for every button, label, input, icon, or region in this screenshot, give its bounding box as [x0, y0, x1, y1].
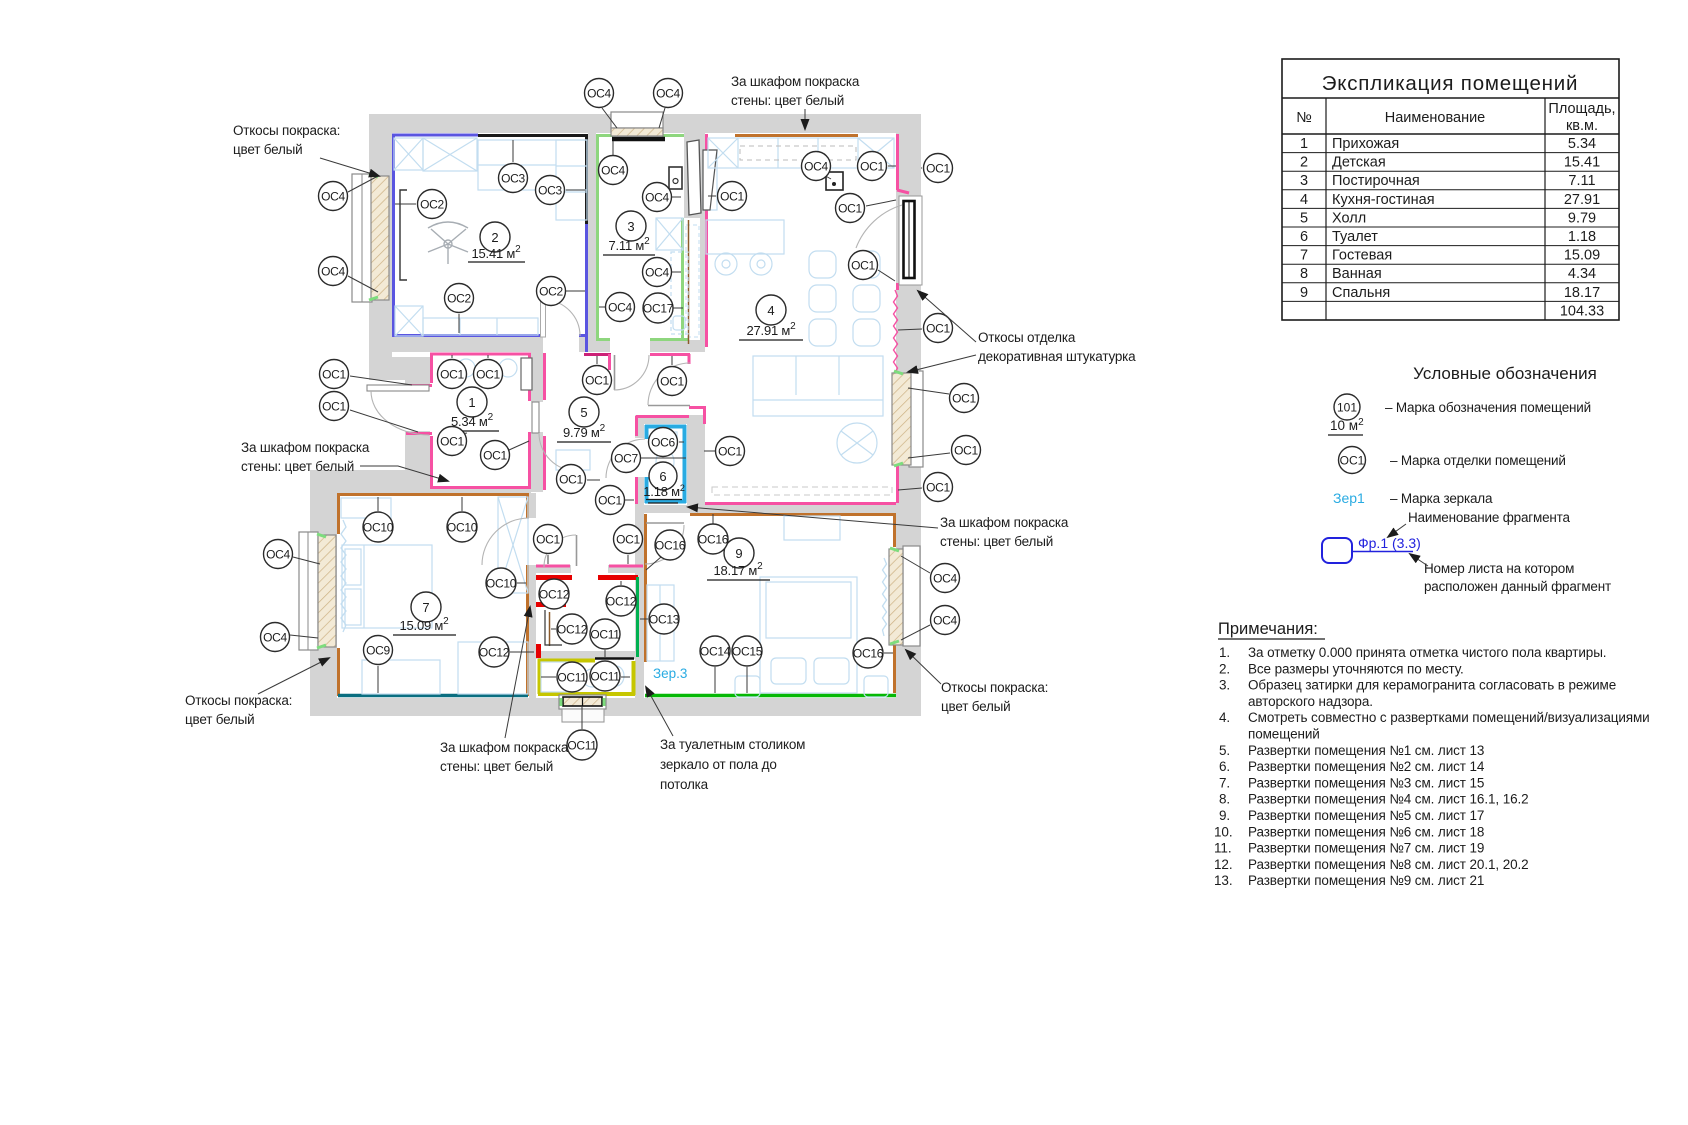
svg-text:ОС3: ОС3: [538, 184, 562, 198]
svg-text:3.: 3.: [1219, 678, 1230, 693]
svg-text:ОС11: ОС11: [567, 739, 597, 753]
svg-text:9.: 9.: [1219, 808, 1230, 823]
svg-text:Развертки помещения №2 см. лис: Развертки помещения №2 см. лист 14: [1248, 759, 1485, 774]
svg-text:ОС1: ОС1: [322, 400, 346, 414]
svg-text:ОС4: ОС4: [933, 614, 957, 628]
svg-text:Развертки помещения №3 см. лис: Развертки помещения №3 см. лист 15: [1248, 775, 1484, 790]
svg-text:2.: 2.: [1219, 661, 1230, 676]
svg-text:ОС1: ОС1: [483, 449, 507, 463]
svg-text:Образец затирки для керамогран: Образец затирки для керамогранита соглас…: [1248, 678, 1616, 693]
svg-text:Смотреть совместно с развертка: Смотреть совместно с развертками помещен…: [1248, 710, 1650, 725]
svg-text:7: 7: [1300, 248, 1308, 264]
svg-text:ОС7: ОС7: [614, 452, 638, 466]
svg-text:8.: 8.: [1219, 792, 1230, 807]
svg-text:9: 9: [735, 546, 742, 561]
svg-text:ОС1: ОС1: [616, 533, 640, 547]
svg-text:ОС1: ОС1: [720, 190, 744, 204]
svg-text:ОС1: ОС1: [838, 202, 862, 216]
svg-text:Зер.3: Зер.3: [653, 666, 687, 681]
svg-text:Гостевая: Гостевая: [1332, 248, 1392, 264]
svg-text:ОС3: ОС3: [501, 172, 525, 186]
svg-text:5.34: 5.34: [1568, 136, 1596, 152]
svg-text:ОС4: ОС4: [266, 548, 290, 562]
svg-text:За отметку 0.000 принята отмет: За отметку 0.000 принята отметка чистого…: [1248, 645, 1606, 660]
svg-text:ОС10: ОС10: [363, 521, 394, 535]
svg-text:8: 8: [1300, 266, 1308, 282]
svg-text:ОС1: ОС1: [954, 444, 978, 458]
svg-text:27.91 м2: 27.91 м2: [746, 321, 796, 338]
svg-text:ОС1: ОС1: [598, 494, 622, 508]
svg-text:За шкафом покраска: За шкафом покраска: [731, 74, 860, 89]
svg-text:18.17: 18.17: [1564, 285, 1600, 301]
svg-text:7.11: 7.11: [1568, 173, 1595, 189]
svg-text:ОС1: ОС1: [440, 435, 464, 449]
svg-text:ОС4: ОС4: [263, 631, 287, 645]
svg-text:ОС1: ОС1: [476, 368, 500, 382]
svg-text:ОС4: ОС4: [656, 87, 680, 101]
svg-text:За шкафом покраска: За шкафом покраска: [241, 440, 370, 455]
svg-text:цвет белый: цвет белый: [941, 699, 1011, 714]
svg-text:18.17 м2: 18.17 м2: [713, 561, 763, 578]
svg-text:ОС12: ОС12: [539, 588, 570, 602]
svg-text:ОС15: ОС15: [732, 645, 763, 659]
svg-text:ОС4: ОС4: [933, 572, 957, 586]
svg-text:Развертки помещения №9 см. лис: Развертки помещения №9 см. лист 21: [1248, 873, 1484, 888]
svg-text:ОС2: ОС2: [447, 292, 471, 306]
svg-text:стены: цвет белый: стены: цвет белый: [940, 534, 1053, 549]
svg-text:3: 3: [627, 219, 634, 234]
svg-text:15.09: 15.09: [1564, 248, 1600, 264]
svg-text:ОС1: ОС1: [536, 533, 560, 547]
svg-text:ОС9: ОС9: [366, 644, 390, 658]
svg-text:ОС14: ОС14: [700, 645, 731, 659]
svg-text:ОС1: ОС1: [926, 481, 950, 495]
svg-text:10.: 10.: [1214, 824, 1232, 839]
svg-text:ОС2: ОС2: [420, 198, 444, 212]
svg-text:За туалетным столиком: За туалетным столиком: [660, 737, 805, 752]
svg-text:1.18: 1.18: [1568, 229, 1596, 245]
svg-text:5: 5: [1300, 210, 1308, 226]
svg-text:7.11 м2: 7.11 м2: [608, 236, 650, 253]
svg-text:ОС1: ОС1: [322, 368, 346, 382]
svg-text:104.33: 104.33: [1560, 303, 1604, 319]
svg-text:Развертки помещения №7 см. лис: Развертки помещения №7 см. лист 19: [1248, 841, 1484, 856]
svg-text:Откосы покраска:: Откосы покраска:: [185, 693, 292, 708]
svg-text:Откосы покраска:: Откосы покраска:: [941, 680, 1048, 695]
svg-text:ОС1: ОС1: [952, 392, 976, 406]
svg-text:стены: цвет белый: стены: цвет белый: [731, 93, 844, 108]
svg-text:ОС4: ОС4: [608, 301, 632, 315]
svg-text:ОС1: ОС1: [559, 473, 583, 487]
svg-text:Развертки помещения №5 см. лис: Развертки помещения №5 см. лист 17: [1248, 808, 1484, 823]
svg-text:ОС1: ОС1: [851, 259, 875, 273]
svg-text:– Марка отделки помещений: – Марка отделки помещений: [1390, 453, 1566, 468]
svg-text:ОС4: ОС4: [321, 265, 345, 279]
svg-text:декоративная штукатурка: декоративная штукатурка: [978, 349, 1136, 364]
svg-text:Экспликация помещений: Экспликация помещений: [1322, 72, 1579, 95]
svg-text:цвет белый: цвет белый: [185, 712, 255, 727]
svg-text:кв.м.: кв.м.: [1566, 118, 1598, 134]
svg-text:9: 9: [1300, 285, 1308, 301]
svg-text:Фр.1 (3.3): Фр.1 (3.3): [1358, 535, 1421, 551]
svg-text:№: №: [1296, 110, 1312, 126]
svg-text:7.: 7.: [1219, 775, 1230, 790]
svg-text:Условные обозначения: Условные обозначения: [1413, 364, 1597, 383]
svg-text:2: 2: [491, 230, 498, 245]
svg-text:ОС11: ОС11: [590, 628, 620, 642]
svg-text:1: 1: [468, 395, 475, 410]
svg-text:ОС1: ОС1: [440, 368, 464, 382]
svg-text:Наименование: Наименование: [1385, 110, 1486, 126]
svg-text:13.: 13.: [1214, 873, 1232, 888]
svg-text:Постирочная: Постирочная: [1332, 173, 1420, 189]
svg-text:зеркало от пола до: зеркало от пола до: [660, 757, 777, 772]
svg-text:11.: 11.: [1214, 841, 1231, 856]
svg-text:Детская: Детская: [1332, 155, 1386, 171]
svg-text:ОС2: ОС2: [539, 285, 563, 299]
svg-text:6: 6: [659, 469, 666, 484]
svg-text:авторского надзора.: авторского надзора.: [1248, 694, 1373, 709]
svg-text:расположен данный фрагмент: расположен данный фрагмент: [1424, 579, 1611, 594]
svg-text:6: 6: [1300, 229, 1308, 245]
svg-text:ОС1: ОС1: [585, 374, 609, 388]
svg-text:цвет белый: цвет белый: [233, 142, 303, 157]
svg-text:ОС4: ОС4: [645, 191, 669, 205]
svg-text:ОС16: ОС16: [698, 533, 729, 547]
svg-text:ОС1: ОС1: [660, 375, 684, 389]
svg-text:Кухня-гостиная: Кухня-гостиная: [1332, 192, 1435, 208]
svg-text:ОС16: ОС16: [655, 539, 686, 553]
svg-text:1: 1: [1300, 136, 1308, 152]
svg-text:Все размеры уточняются по мест: Все размеры уточняются по месту.: [1248, 661, 1464, 676]
svg-text:Площадь,: Площадь,: [1548, 101, 1615, 117]
svg-text:ОС12: ОС12: [606, 595, 637, 609]
svg-text:Наименование фрагмента: Наименование фрагмента: [1408, 510, 1570, 525]
svg-text:ОС1: ОС1: [1340, 454, 1365, 468]
svg-text:ОС11: ОС11: [557, 671, 587, 685]
svg-text:помещений: помещений: [1248, 727, 1320, 742]
svg-text:– Марка зеркала: – Марка зеркала: [1390, 491, 1493, 506]
svg-text:15.41 м2: 15.41 м2: [471, 244, 521, 261]
svg-text:За шкафом покраска: За шкафом покраска: [940, 515, 1069, 530]
svg-text:5.: 5.: [1219, 743, 1230, 758]
svg-text:Номер листа на котором: Номер листа на котором: [1424, 561, 1574, 576]
svg-text:ОС1: ОС1: [926, 162, 950, 176]
svg-text:4.34: 4.34: [1568, 266, 1596, 282]
svg-text:потолка: потолка: [660, 777, 709, 792]
svg-text:ОС12: ОС12: [479, 646, 510, 660]
svg-text:9.79 м2: 9.79 м2: [563, 423, 606, 440]
svg-text:27.91: 27.91: [1564, 192, 1600, 208]
svg-text:Откосы покраска:: Откосы покраска:: [233, 123, 340, 138]
svg-text:ОС4: ОС4: [645, 266, 669, 280]
svg-text:Развертки помещения №4 см. лис: Развертки помещения №4 см. лист 16.1, 16…: [1248, 792, 1529, 807]
svg-text:Спальня: Спальня: [1332, 285, 1390, 301]
svg-text:Развертки помещения №6 см. лис: Развертки помещения №6 см. лист 18: [1248, 824, 1484, 839]
svg-text:Прихожая: Прихожая: [1332, 136, 1399, 152]
svg-text:1.: 1.: [1219, 645, 1230, 660]
svg-text:9.79: 9.79: [1568, 210, 1596, 226]
svg-text:ОС4: ОС4: [321, 190, 345, 204]
svg-text:Зер1: Зер1: [1333, 490, 1365, 506]
svg-text:ОС6: ОС6: [651, 436, 675, 450]
svg-text:ОС17: ОС17: [643, 302, 674, 316]
svg-text:5.34 м2: 5.34 м2: [451, 412, 494, 429]
svg-text:ОС1: ОС1: [926, 322, 950, 336]
svg-text:5: 5: [580, 405, 587, 420]
svg-text:За шкафом покраска: За шкафом покраска: [440, 740, 569, 755]
svg-text:2: 2: [1300, 155, 1308, 171]
svg-text:12.: 12.: [1214, 857, 1232, 872]
svg-text:ОС1: ОС1: [718, 445, 742, 459]
svg-text:стены: цвет белый: стены: цвет белый: [241, 459, 354, 474]
svg-text:стены: цвет белый: стены: цвет белый: [440, 759, 553, 774]
svg-text:– Марка обозначения помещений: – Марка обозначения помещений: [1385, 400, 1591, 415]
svg-text:Развертки помещения №8 см. лис: Развертки помещения №8 см. лист 20.1, 20…: [1248, 857, 1529, 872]
svg-text:ОС4: ОС4: [601, 164, 625, 178]
svg-text:ОС4: ОС4: [804, 160, 828, 174]
svg-text:1.18 м2: 1.18 м2: [643, 483, 685, 499]
svg-text:ОС4: ОС4: [587, 87, 611, 101]
svg-text:4: 4: [1300, 192, 1308, 208]
svg-text:ОС13: ОС13: [649, 613, 680, 627]
svg-text:7: 7: [422, 600, 429, 615]
svg-text:Ванная: Ванная: [1332, 266, 1382, 282]
svg-text:ОС11: ОС11: [590, 670, 620, 684]
svg-text:ОС16: ОС16: [853, 647, 884, 661]
svg-text:Холл: Холл: [1332, 210, 1366, 226]
svg-text:Откосы отделка: Откосы отделка: [978, 330, 1076, 345]
svg-text:Туалет: Туалет: [1332, 229, 1378, 245]
svg-text:6.: 6.: [1219, 759, 1230, 774]
svg-text:ОС10: ОС10: [486, 577, 517, 591]
svg-text:ОС1: ОС1: [860, 160, 884, 174]
svg-text:4.: 4.: [1219, 710, 1230, 725]
svg-text:15.41: 15.41: [1564, 155, 1600, 171]
svg-text:101: 101: [1337, 401, 1357, 415]
svg-text:15.09 м2: 15.09 м2: [399, 616, 449, 633]
svg-text:ОС12: ОС12: [557, 623, 588, 637]
svg-text:4: 4: [767, 303, 774, 318]
svg-text:3: 3: [1300, 173, 1308, 189]
svg-text:Примечания:: Примечания:: [1218, 620, 1318, 638]
svg-text:Развертки помещения №1 см. лис: Развертки помещения №1 см. лист 13: [1248, 743, 1484, 758]
svg-text:ОС10: ОС10: [447, 521, 478, 535]
